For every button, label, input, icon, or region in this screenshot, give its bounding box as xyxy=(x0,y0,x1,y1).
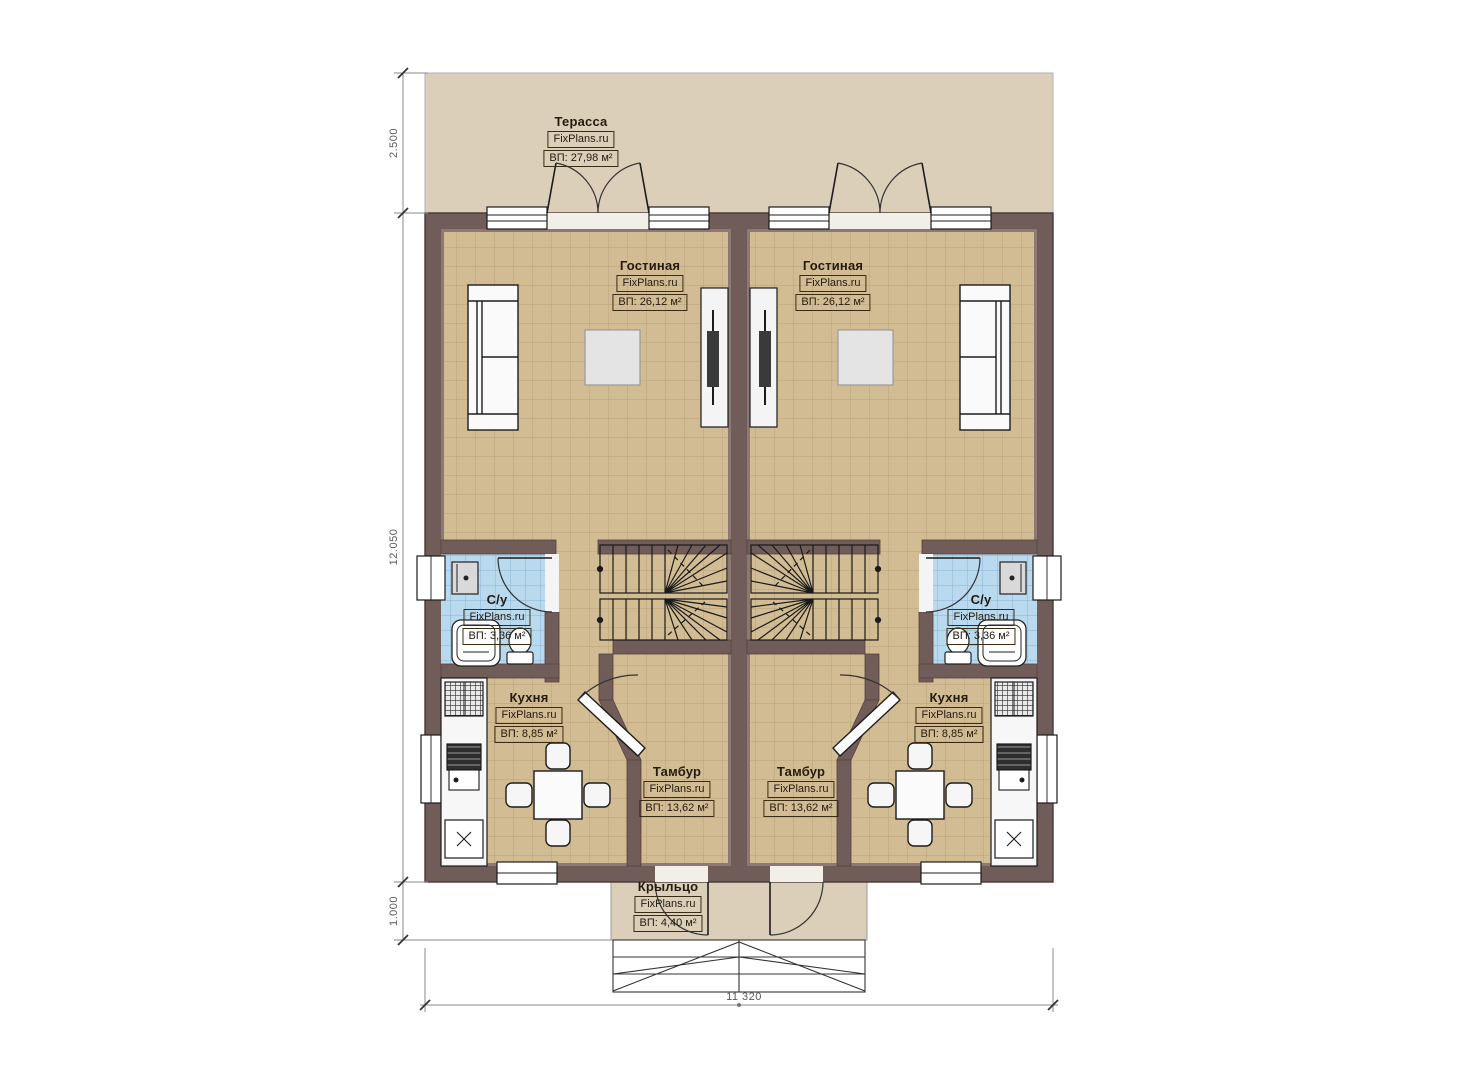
room-area: ВП: 8,85 м² xyxy=(494,726,563,743)
room-area: ВП: 8,85 м² xyxy=(914,726,983,743)
room-name: Кухня xyxy=(914,690,983,705)
dim-house-depth: 12.050 xyxy=(388,529,400,566)
room-name: Тамбур xyxy=(763,764,838,779)
room-area: ВП: 26,12 м² xyxy=(612,294,687,311)
watermark: FixPlans.ru xyxy=(915,707,982,724)
room-name: Крыльцо xyxy=(633,879,702,894)
room-name: Гостиная xyxy=(612,258,687,273)
room-name: Гостиная xyxy=(795,258,870,273)
watermark: FixPlans.ru xyxy=(547,131,614,148)
watermark: FixPlans.ru xyxy=(495,707,562,724)
room-label-wc-left: С/у FixPlans.ru ВП: 3,36 м² xyxy=(462,592,531,645)
room-label-living-left: Гостиная FixPlans.ru ВП: 26,12 м² xyxy=(612,258,687,311)
room-label-kitchen-left: Кухня FixPlans.ru ВП: 8,85 м² xyxy=(494,690,563,743)
room-area: ВП: 13,62 м² xyxy=(763,800,838,817)
floor-plan-drawing xyxy=(0,0,1473,1080)
room-area: ВП: 13,62 м² xyxy=(639,800,714,817)
room-label-vestibule-right: Тамбур FixPlans.ru ВП: 13,62 м² xyxy=(763,764,838,817)
watermark: FixPlans.ru xyxy=(463,609,530,626)
watermark: FixPlans.ru xyxy=(634,896,701,913)
watermark: FixPlans.ru xyxy=(799,275,866,292)
dim-porch-depth: 1.000 xyxy=(388,896,400,926)
room-area: ВП: 26,12 м² xyxy=(795,294,870,311)
room-area: ВП: 27,98 м² xyxy=(543,150,618,167)
room-label-wc-right: С/у FixPlans.ru ВП: 3,36 м² xyxy=(946,592,1015,645)
room-name: С/у xyxy=(462,592,531,607)
room-label-terrace: Терасса FixPlans.ru ВП: 27,98 м² xyxy=(543,114,618,167)
room-area: ВП: 3,36 м² xyxy=(946,628,1015,645)
watermark: FixPlans.ru xyxy=(643,781,710,798)
porch-steps xyxy=(613,940,865,992)
floor-plan-page: Терасса FixPlans.ru ВП: 27,98 м² Гостина… xyxy=(0,0,1473,1080)
room-label-living-right: Гостиная FixPlans.ru ВП: 26,12 м² xyxy=(795,258,870,311)
room-name: Терасса xyxy=(543,114,618,129)
room-area: ВП: 3,36 м² xyxy=(462,628,531,645)
room-label-kitchen-right: Кухня FixPlans.ru ВП: 8,85 м² xyxy=(914,690,983,743)
room-name: Кухня xyxy=(494,690,563,705)
room-label-porch: Крыльцо FixPlans.ru ВП: 4,40 м² xyxy=(633,879,702,932)
unit-right xyxy=(747,163,1061,935)
dim-terrace-depth: 2.500 xyxy=(388,128,400,158)
room-area: ВП: 4,40 м² xyxy=(633,915,702,932)
room-label-vestibule-left: Тамбур FixPlans.ru ВП: 13,62 м² xyxy=(639,764,714,817)
terrace-area xyxy=(425,73,1053,213)
watermark: FixPlans.ru xyxy=(616,275,683,292)
watermark: FixPlans.ru xyxy=(947,609,1014,626)
dim-house-width: 11 320 xyxy=(726,991,762,1003)
room-name: С/у xyxy=(946,592,1015,607)
watermark: FixPlans.ru xyxy=(767,781,834,798)
room-name: Тамбур xyxy=(639,764,714,779)
